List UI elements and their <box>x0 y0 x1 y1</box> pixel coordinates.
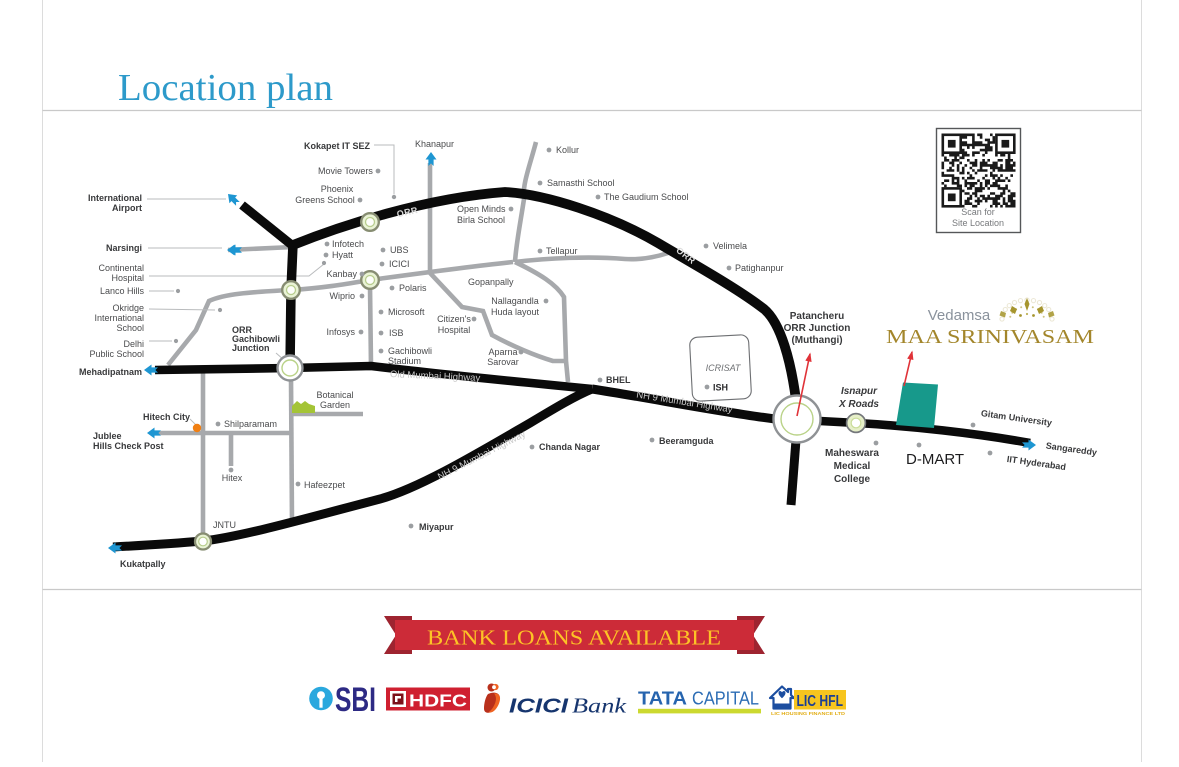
svg-text:The Gaudium School: The Gaudium School <box>604 192 689 202</box>
svg-text:Citizen's: Citizen's <box>437 314 471 324</box>
svg-text:Isnapur: Isnapur <box>841 386 878 397</box>
svg-text:Wiprio: Wiprio <box>329 291 355 301</box>
svg-text:College: College <box>834 474 871 485</box>
svg-text:Scan for: Scan for <box>961 207 995 217</box>
svg-text:Hospital: Hospital <box>438 325 471 335</box>
svg-text:ICRISAT: ICRISAT <box>706 363 742 373</box>
svg-text:Miyapur: Miyapur <box>419 522 454 532</box>
svg-text:LIC HFL: LIC HFL <box>797 693 844 710</box>
svg-text:Continental: Continental <box>98 263 144 273</box>
svg-text:Hyatt: Hyatt <box>332 250 354 260</box>
svg-text:Movie Towers: Movie Towers <box>318 166 373 176</box>
svg-text:MAA SRINIVASAM: MAA SRINIVASAM <box>886 326 1094 348</box>
svg-text:Microsoft: Microsoft <box>388 307 425 317</box>
svg-text:Nallagandla: Nallagandla <box>491 296 539 306</box>
svg-text:Garden: Garden <box>320 400 350 410</box>
svg-text:ORR Junction: ORR Junction <box>784 323 851 334</box>
svg-text:Velimela: Velimela <box>713 241 747 251</box>
svg-text:Infotech: Infotech <box>332 239 364 249</box>
svg-text:Tellapur: Tellapur <box>546 246 578 256</box>
svg-text:Khanapur: Khanapur <box>415 139 454 149</box>
svg-text:(Muthangi): (Muthangi) <box>791 335 842 346</box>
svg-text:Public School: Public School <box>89 349 144 359</box>
svg-text:Kukatpally: Kukatpally <box>120 559 166 569</box>
svg-text:Kollur: Kollur <box>556 145 579 155</box>
svg-text:BANK LOANS AVAILABLE: BANK LOANS AVAILABLE <box>427 626 721 650</box>
svg-text:Samasthi School: Samasthi School <box>547 178 615 188</box>
svg-text:Delhi: Delhi <box>123 339 144 349</box>
svg-text:CAPITAL: CAPITAL <box>692 689 759 709</box>
svg-text:LIC HOUSING FINANCE LTD: LIC HOUSING FINANCE LTD <box>771 711 846 717</box>
svg-text:Hospital: Hospital <box>111 273 144 283</box>
svg-text:Birla School: Birla School <box>457 215 505 225</box>
svg-text:Narsingi: Narsingi <box>106 243 142 253</box>
svg-text:Vedamsa: Vedamsa <box>928 307 991 324</box>
svg-text:BHEL: BHEL <box>606 375 631 385</box>
svg-text:School: School <box>116 323 144 333</box>
svg-text:Beeramguda: Beeramguda <box>659 436 715 446</box>
svg-text:Mehadipatnam: Mehadipatnam <box>79 367 142 377</box>
svg-text:Jublee: Jublee <box>93 431 122 441</box>
svg-text:ICICI: ICICI <box>389 259 410 269</box>
svg-text:X Roads: X Roads <box>838 399 879 410</box>
svg-text:Botanical: Botanical <box>316 390 353 400</box>
svg-text:Junction: Junction <box>232 343 270 353</box>
svg-text:Polaris: Polaris <box>399 283 427 293</box>
svg-text:Huda layout: Huda layout <box>491 307 540 317</box>
svg-text:JNTU: JNTU <box>213 520 236 530</box>
svg-text:ISB: ISB <box>389 328 404 338</box>
svg-text:Lanco Hills: Lanco Hills <box>100 286 145 296</box>
svg-text:Location plan: Location plan <box>118 67 333 109</box>
svg-text:Chanda Nagar: Chanda Nagar <box>539 442 601 452</box>
svg-text:International: International <box>88 193 142 203</box>
svg-text:Stadium: Stadium <box>388 356 421 366</box>
svg-text:Site Location: Site Location <box>952 218 1004 228</box>
svg-text:International: International <box>94 313 144 323</box>
svg-text:Phoenix: Phoenix <box>321 184 354 194</box>
svg-text:Open Minds: Open Minds <box>457 204 506 214</box>
svg-text:Hitech City: Hitech City <box>143 412 190 422</box>
svg-text:Okridge: Okridge <box>112 303 144 313</box>
svg-text:Airport: Airport <box>112 203 142 213</box>
svg-text:Greens School: Greens School <box>295 195 355 205</box>
svg-text:ICICI: ICICI <box>509 696 569 718</box>
svg-text:Sarovar: Sarovar <box>487 357 519 367</box>
svg-text:HDFC: HDFC <box>409 691 467 711</box>
svg-text:Gachibowli: Gachibowli <box>388 346 432 356</box>
svg-text:Infosys: Infosys <box>326 327 355 337</box>
svg-text:D-MART: D-MART <box>906 451 964 468</box>
svg-text:Shilparamam: Shilparamam <box>224 419 277 429</box>
svg-text:TATA: TATA <box>638 689 687 709</box>
svg-text:Kanbay: Kanbay <box>326 269 357 279</box>
svg-text:Hafeezpet: Hafeezpet <box>304 480 346 490</box>
svg-text:Hitex: Hitex <box>222 473 243 483</box>
svg-text:Kokapet IT SEZ: Kokapet IT SEZ <box>304 141 371 151</box>
svg-text:UBS: UBS <box>390 245 409 255</box>
svg-text:Aparna: Aparna <box>488 347 517 357</box>
svg-text:Hills Check Post: Hills Check Post <box>93 441 164 451</box>
svg-text:SBI: SBI <box>335 681 376 719</box>
svg-text:Medical: Medical <box>834 461 871 472</box>
svg-text:Patancheru: Patancheru <box>790 311 844 322</box>
svg-text:ISH: ISH <box>713 383 728 393</box>
svg-text:Patighanpur: Patighanpur <box>735 263 784 273</box>
svg-text:Maheswara: Maheswara <box>825 448 879 459</box>
svg-text:Gopanpally: Gopanpally <box>468 277 514 287</box>
svg-text:Bank: Bank <box>572 694 627 718</box>
